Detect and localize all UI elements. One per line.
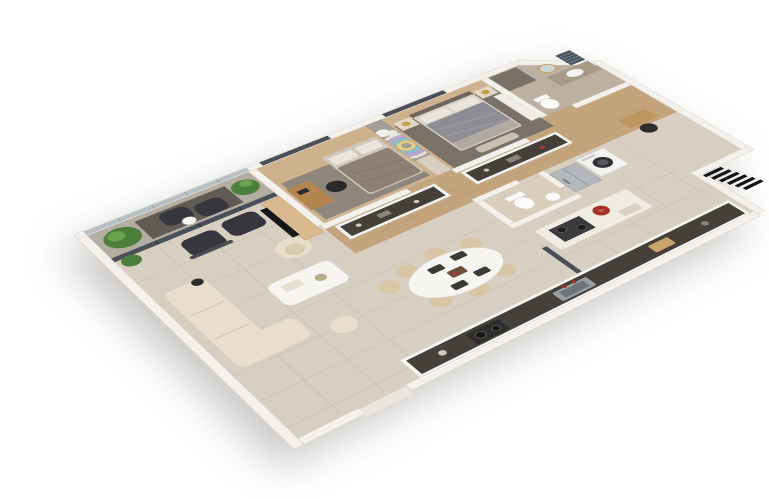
floorplan-tilted-plane <box>67 38 769 455</box>
floorplan-3d-render <box>127 0 769 427</box>
floorplan-svg <box>67 38 769 455</box>
screenshot-root: { "window": { "background": "#ffffff", "… <box>0 0 769 499</box>
